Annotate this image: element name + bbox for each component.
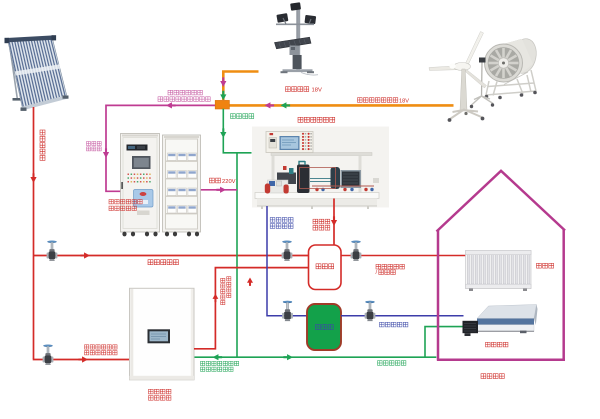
svg-text:18V: 18V xyxy=(399,98,409,104)
svg-text:18V: 18V xyxy=(312,88,322,94)
svg-text:220V: 220V xyxy=(222,179,236,185)
